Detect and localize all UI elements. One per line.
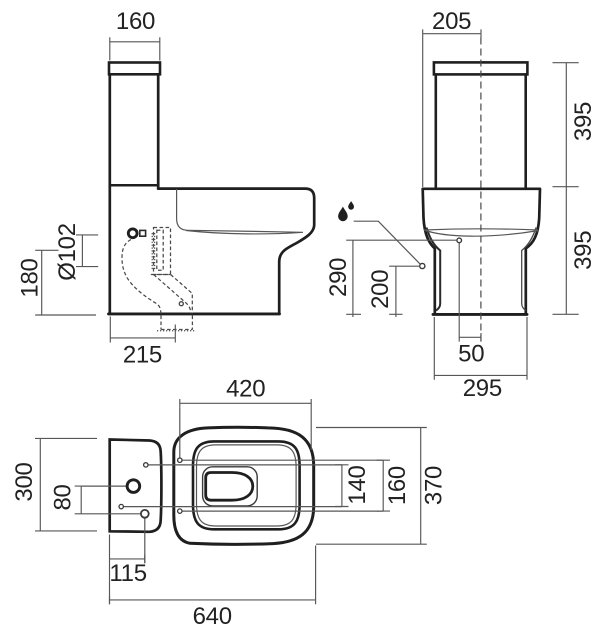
- svg-text:205: 205: [432, 8, 471, 35]
- svg-text:420: 420: [226, 376, 265, 403]
- svg-text:395: 395: [570, 102, 597, 141]
- svg-text:300: 300: [11, 462, 38, 501]
- svg-text:180: 180: [17, 258, 44, 297]
- svg-text:50: 50: [458, 341, 484, 368]
- svg-text:200: 200: [367, 270, 394, 309]
- svg-text:370: 370: [421, 466, 448, 505]
- svg-text:160: 160: [116, 8, 155, 35]
- svg-text:80: 80: [50, 484, 77, 510]
- svg-text:395: 395: [570, 231, 597, 270]
- svg-text:Ø102: Ø102: [54, 223, 81, 281]
- svg-text:215: 215: [123, 342, 162, 369]
- svg-text:160: 160: [384, 466, 411, 505]
- svg-text:140: 140: [344, 465, 371, 504]
- svg-text:640: 640: [193, 603, 232, 630]
- svg-text:115: 115: [109, 560, 146, 587]
- svg-text:290: 290: [325, 258, 352, 297]
- svg-text:295: 295: [463, 375, 502, 402]
